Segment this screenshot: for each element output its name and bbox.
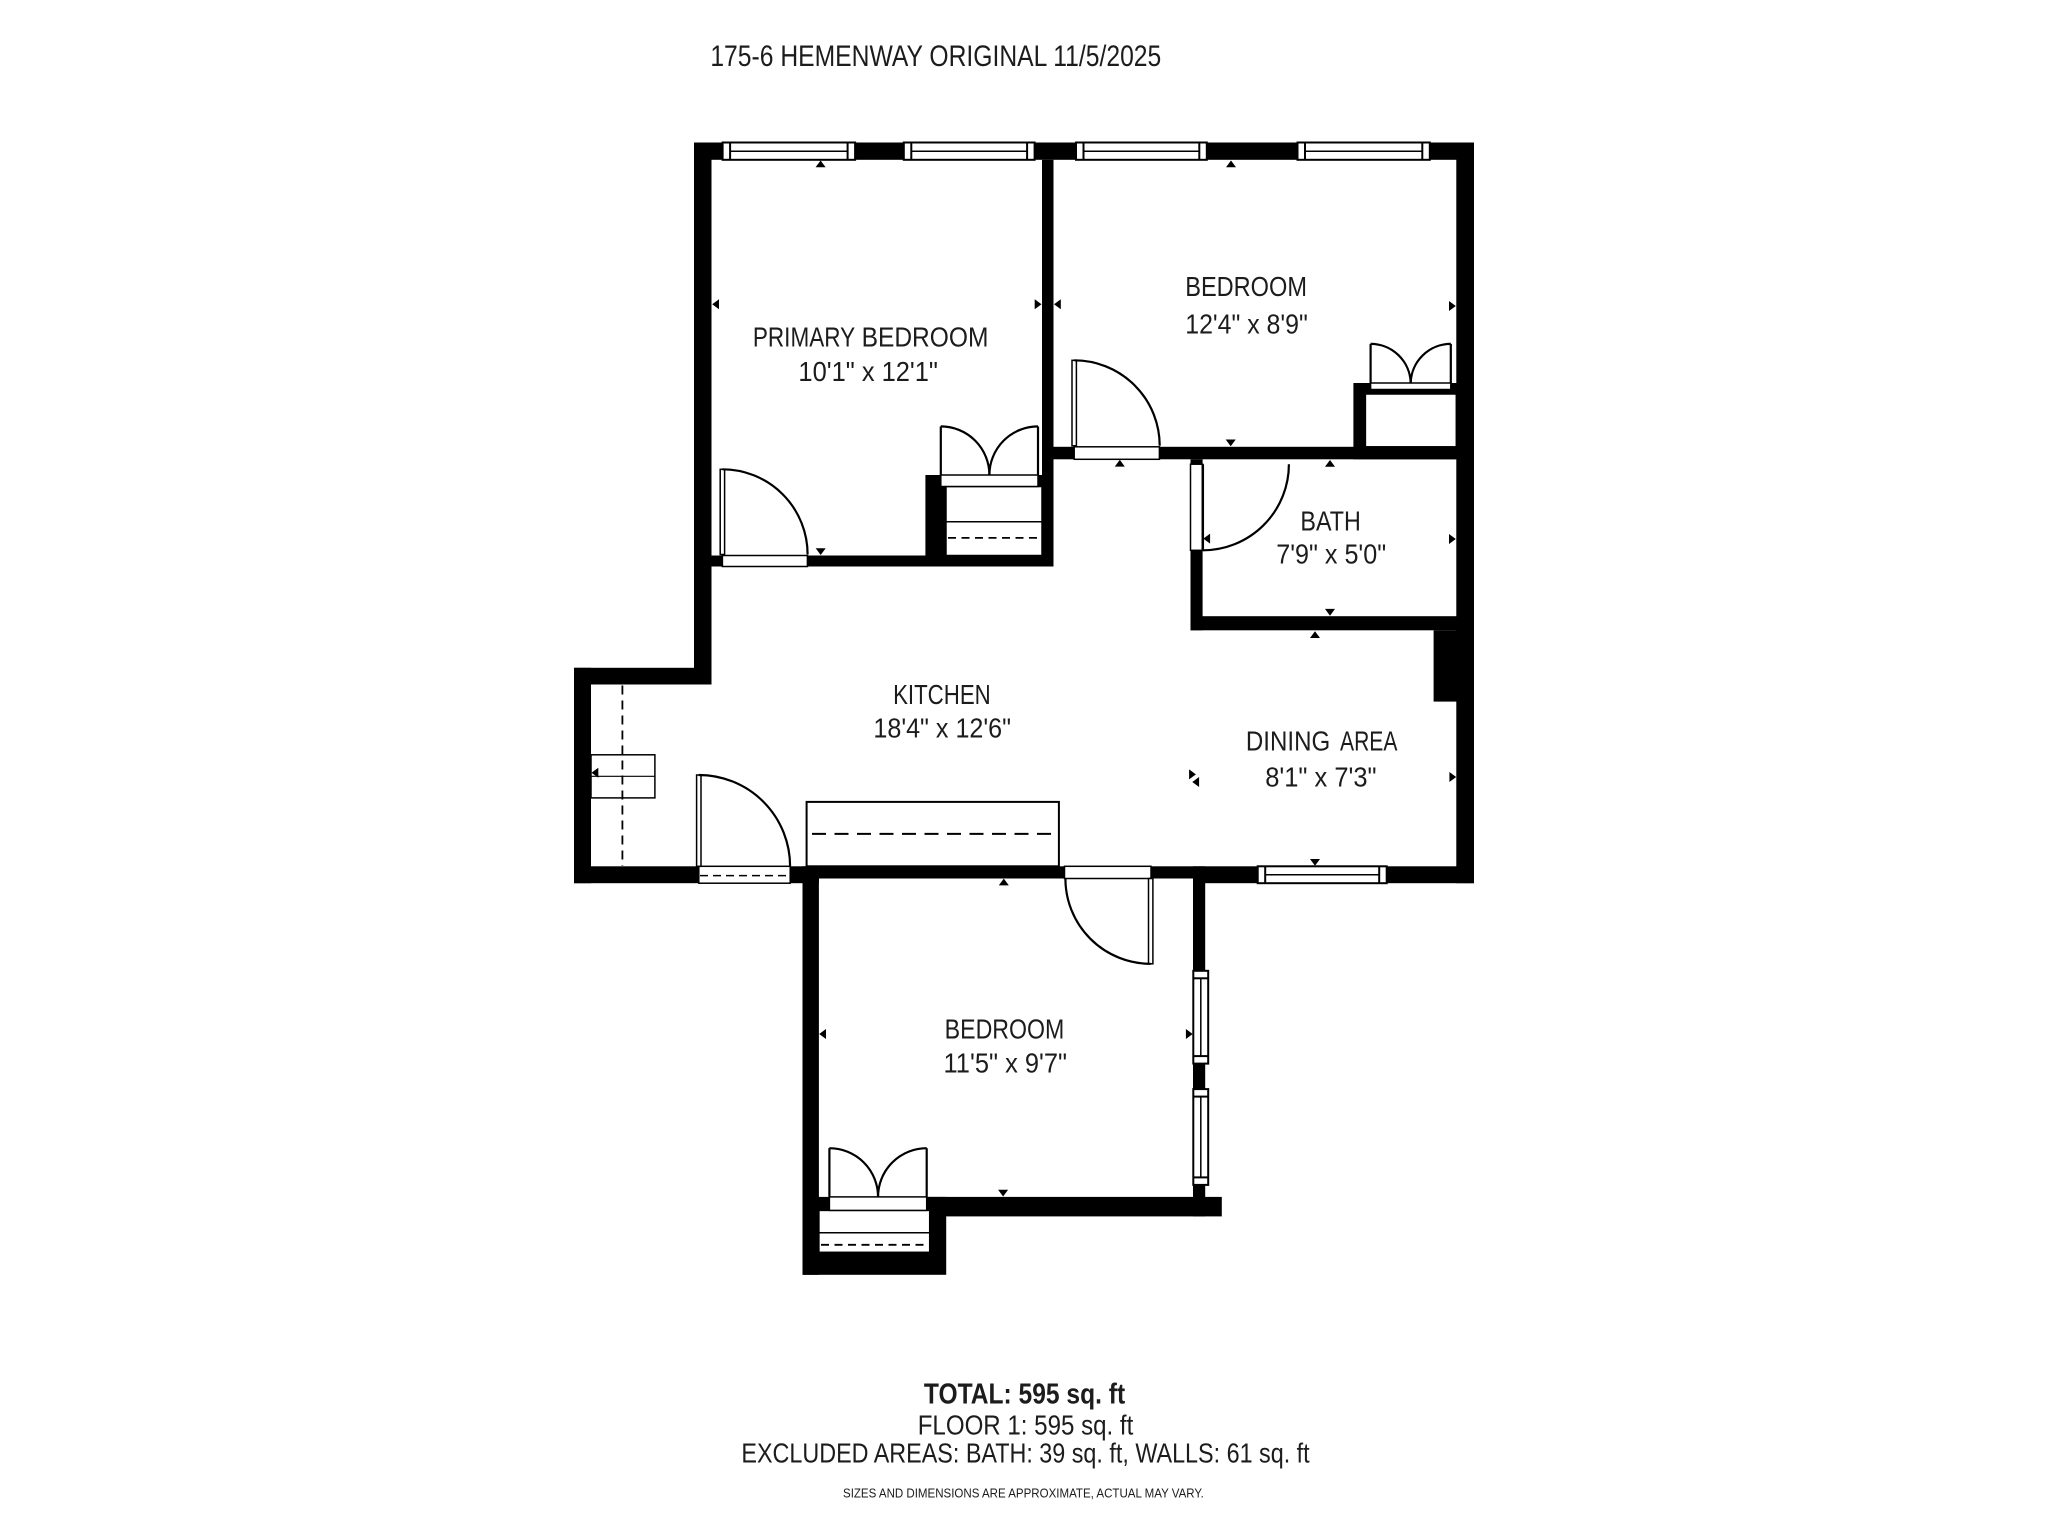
svg-text:18'4" x 12'6": 18'4" x 12'6"	[873, 712, 1011, 744]
svg-text:TOTAL: 595 sq. ft: TOTAL: 595 sq. ft	[924, 1378, 1125, 1410]
svg-text:BEDROOM: BEDROOM	[862, 321, 989, 353]
svg-text:10'1" x 12'1": 10'1" x 12'1"	[798, 356, 938, 387]
svg-text:DINING: DINING	[1246, 725, 1330, 757]
svg-text:BEDROOM: BEDROOM	[945, 1014, 1065, 1045]
svg-text:AREA: AREA	[1340, 727, 1398, 757]
svg-text:12'4" x 8'9": 12'4" x 8'9"	[1185, 308, 1308, 340]
svg-text:11'5" x 9'7": 11'5" x 9'7"	[944, 1048, 1068, 1079]
svg-text:175-6 HEMENWAY ORIGINAL 11/5/2: 175-6 HEMENWAY ORIGINAL 11/5/2025	[710, 39, 1161, 73]
svg-text:7'9" x 5'0": 7'9" x 5'0"	[1276, 538, 1386, 570]
svg-text:BEDROOM: BEDROOM	[1185, 272, 1307, 302]
svg-text:KITCHEN: KITCHEN	[893, 679, 991, 710]
svg-text:SIZES AND DIMENSIONS ARE APPRO: SIZES AND DIMENSIONS ARE APPROXIMATE, AC…	[843, 1486, 1204, 1501]
svg-text:PRIMARY: PRIMARY	[753, 322, 855, 353]
svg-text:BATH: BATH	[1300, 507, 1360, 537]
svg-text:FLOOR 1: 595 sq. ft: FLOOR 1: 595 sq. ft	[918, 1409, 1134, 1441]
svg-text:8'1" x 7'3": 8'1" x 7'3"	[1265, 761, 1376, 792]
svg-text:EXCLUDED AREAS: BATH: 39 sq. f: EXCLUDED AREAS: BATH: 39 sq. ft, WALLS: …	[741, 1439, 1309, 1469]
